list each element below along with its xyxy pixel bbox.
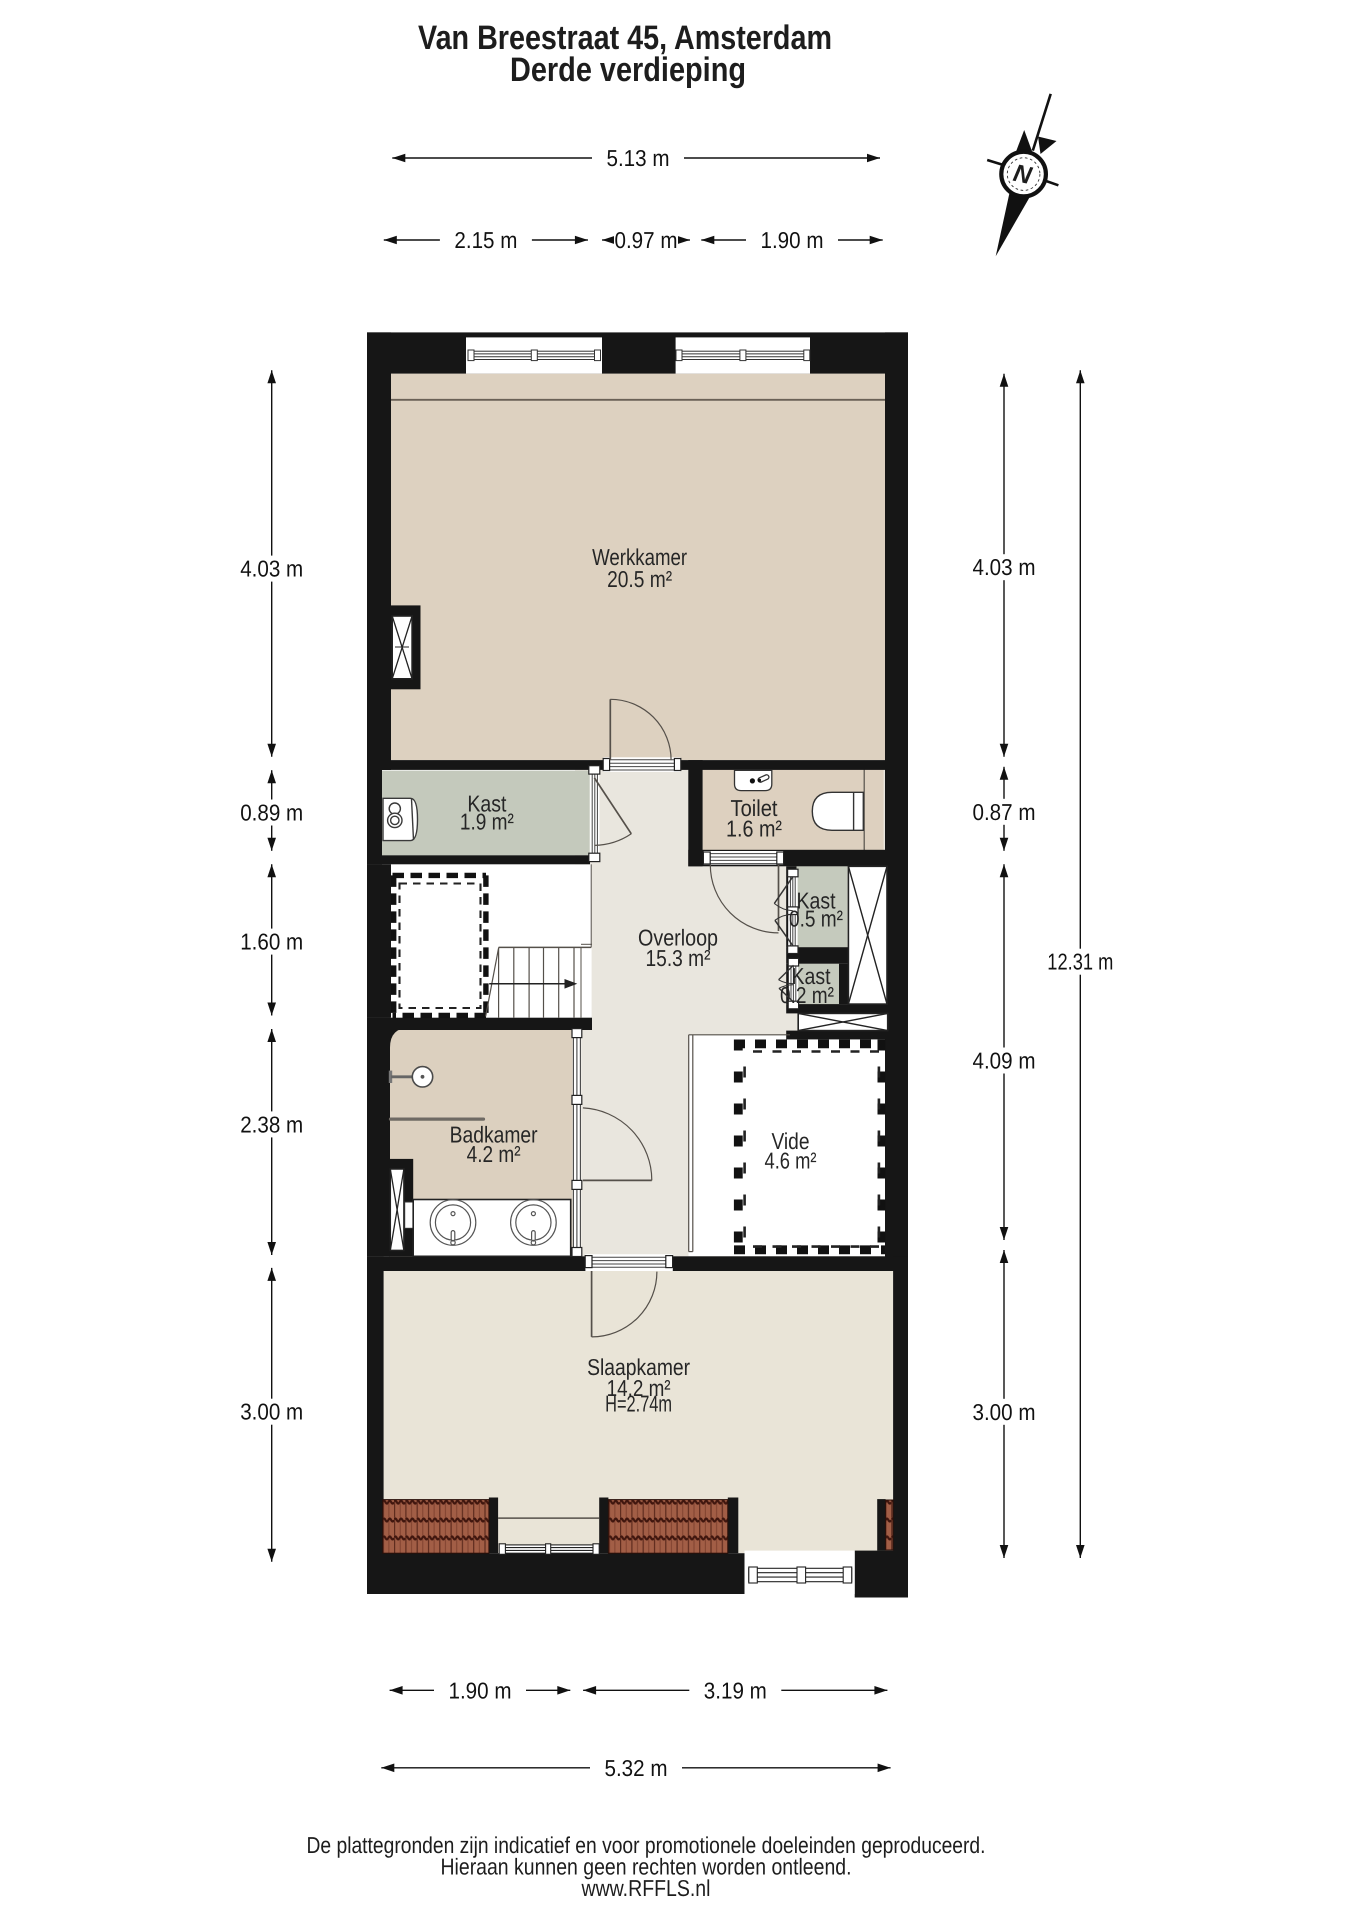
svg-text:2.15 m: 2.15 m — [454, 227, 517, 253]
svg-text:3.19 m: 3.19 m — [704, 1677, 767, 1703]
svg-text:1.90 m: 1.90 m — [761, 227, 824, 253]
svg-text:1.60 m: 1.60 m — [240, 929, 303, 955]
svg-text:3.00 m: 3.00 m — [973, 1399, 1036, 1425]
svg-text:4.09 m: 4.09 m — [973, 1048, 1036, 1074]
svg-text:www.RFFLS.nl: www.RFFLS.nl — [581, 1875, 711, 1901]
svg-text:H=2.74m: H=2.74m — [605, 1390, 672, 1416]
svg-text:5.13 m: 5.13 m — [607, 145, 670, 171]
svg-text:Derde verdieping: Derde verdieping — [510, 51, 746, 89]
svg-text:4.6 m²: 4.6 m² — [765, 1148, 817, 1174]
svg-text:0.89 m: 0.89 m — [240, 800, 303, 826]
svg-text:4.03 m: 4.03 m — [240, 556, 303, 582]
svg-text:0.2 m²: 0.2 m² — [780, 982, 834, 1008]
svg-text:1.6 m²: 1.6 m² — [726, 816, 782, 842]
svg-text:0.97 m: 0.97 m — [615, 227, 678, 253]
svg-text:20.5 m²: 20.5 m² — [607, 566, 672, 592]
svg-text:4.03 m: 4.03 m — [973, 554, 1036, 580]
svg-text:1.90 m: 1.90 m — [449, 1677, 512, 1703]
svg-text:2.38 m: 2.38 m — [240, 1111, 303, 1137]
svg-text:0.87 m: 0.87 m — [973, 799, 1036, 825]
svg-text:12.31 m: 12.31 m — [1047, 949, 1113, 975]
svg-text:5.32 m: 5.32 m — [605, 1755, 668, 1781]
svg-text:4.2 m²: 4.2 m² — [467, 1141, 521, 1167]
svg-text:15.3 m²: 15.3 m² — [646, 945, 711, 971]
svg-text:3.00 m: 3.00 m — [240, 1399, 303, 1425]
svg-text:1.9 m²: 1.9 m² — [460, 809, 514, 835]
svg-text:0.5 m²: 0.5 m² — [789, 905, 843, 931]
